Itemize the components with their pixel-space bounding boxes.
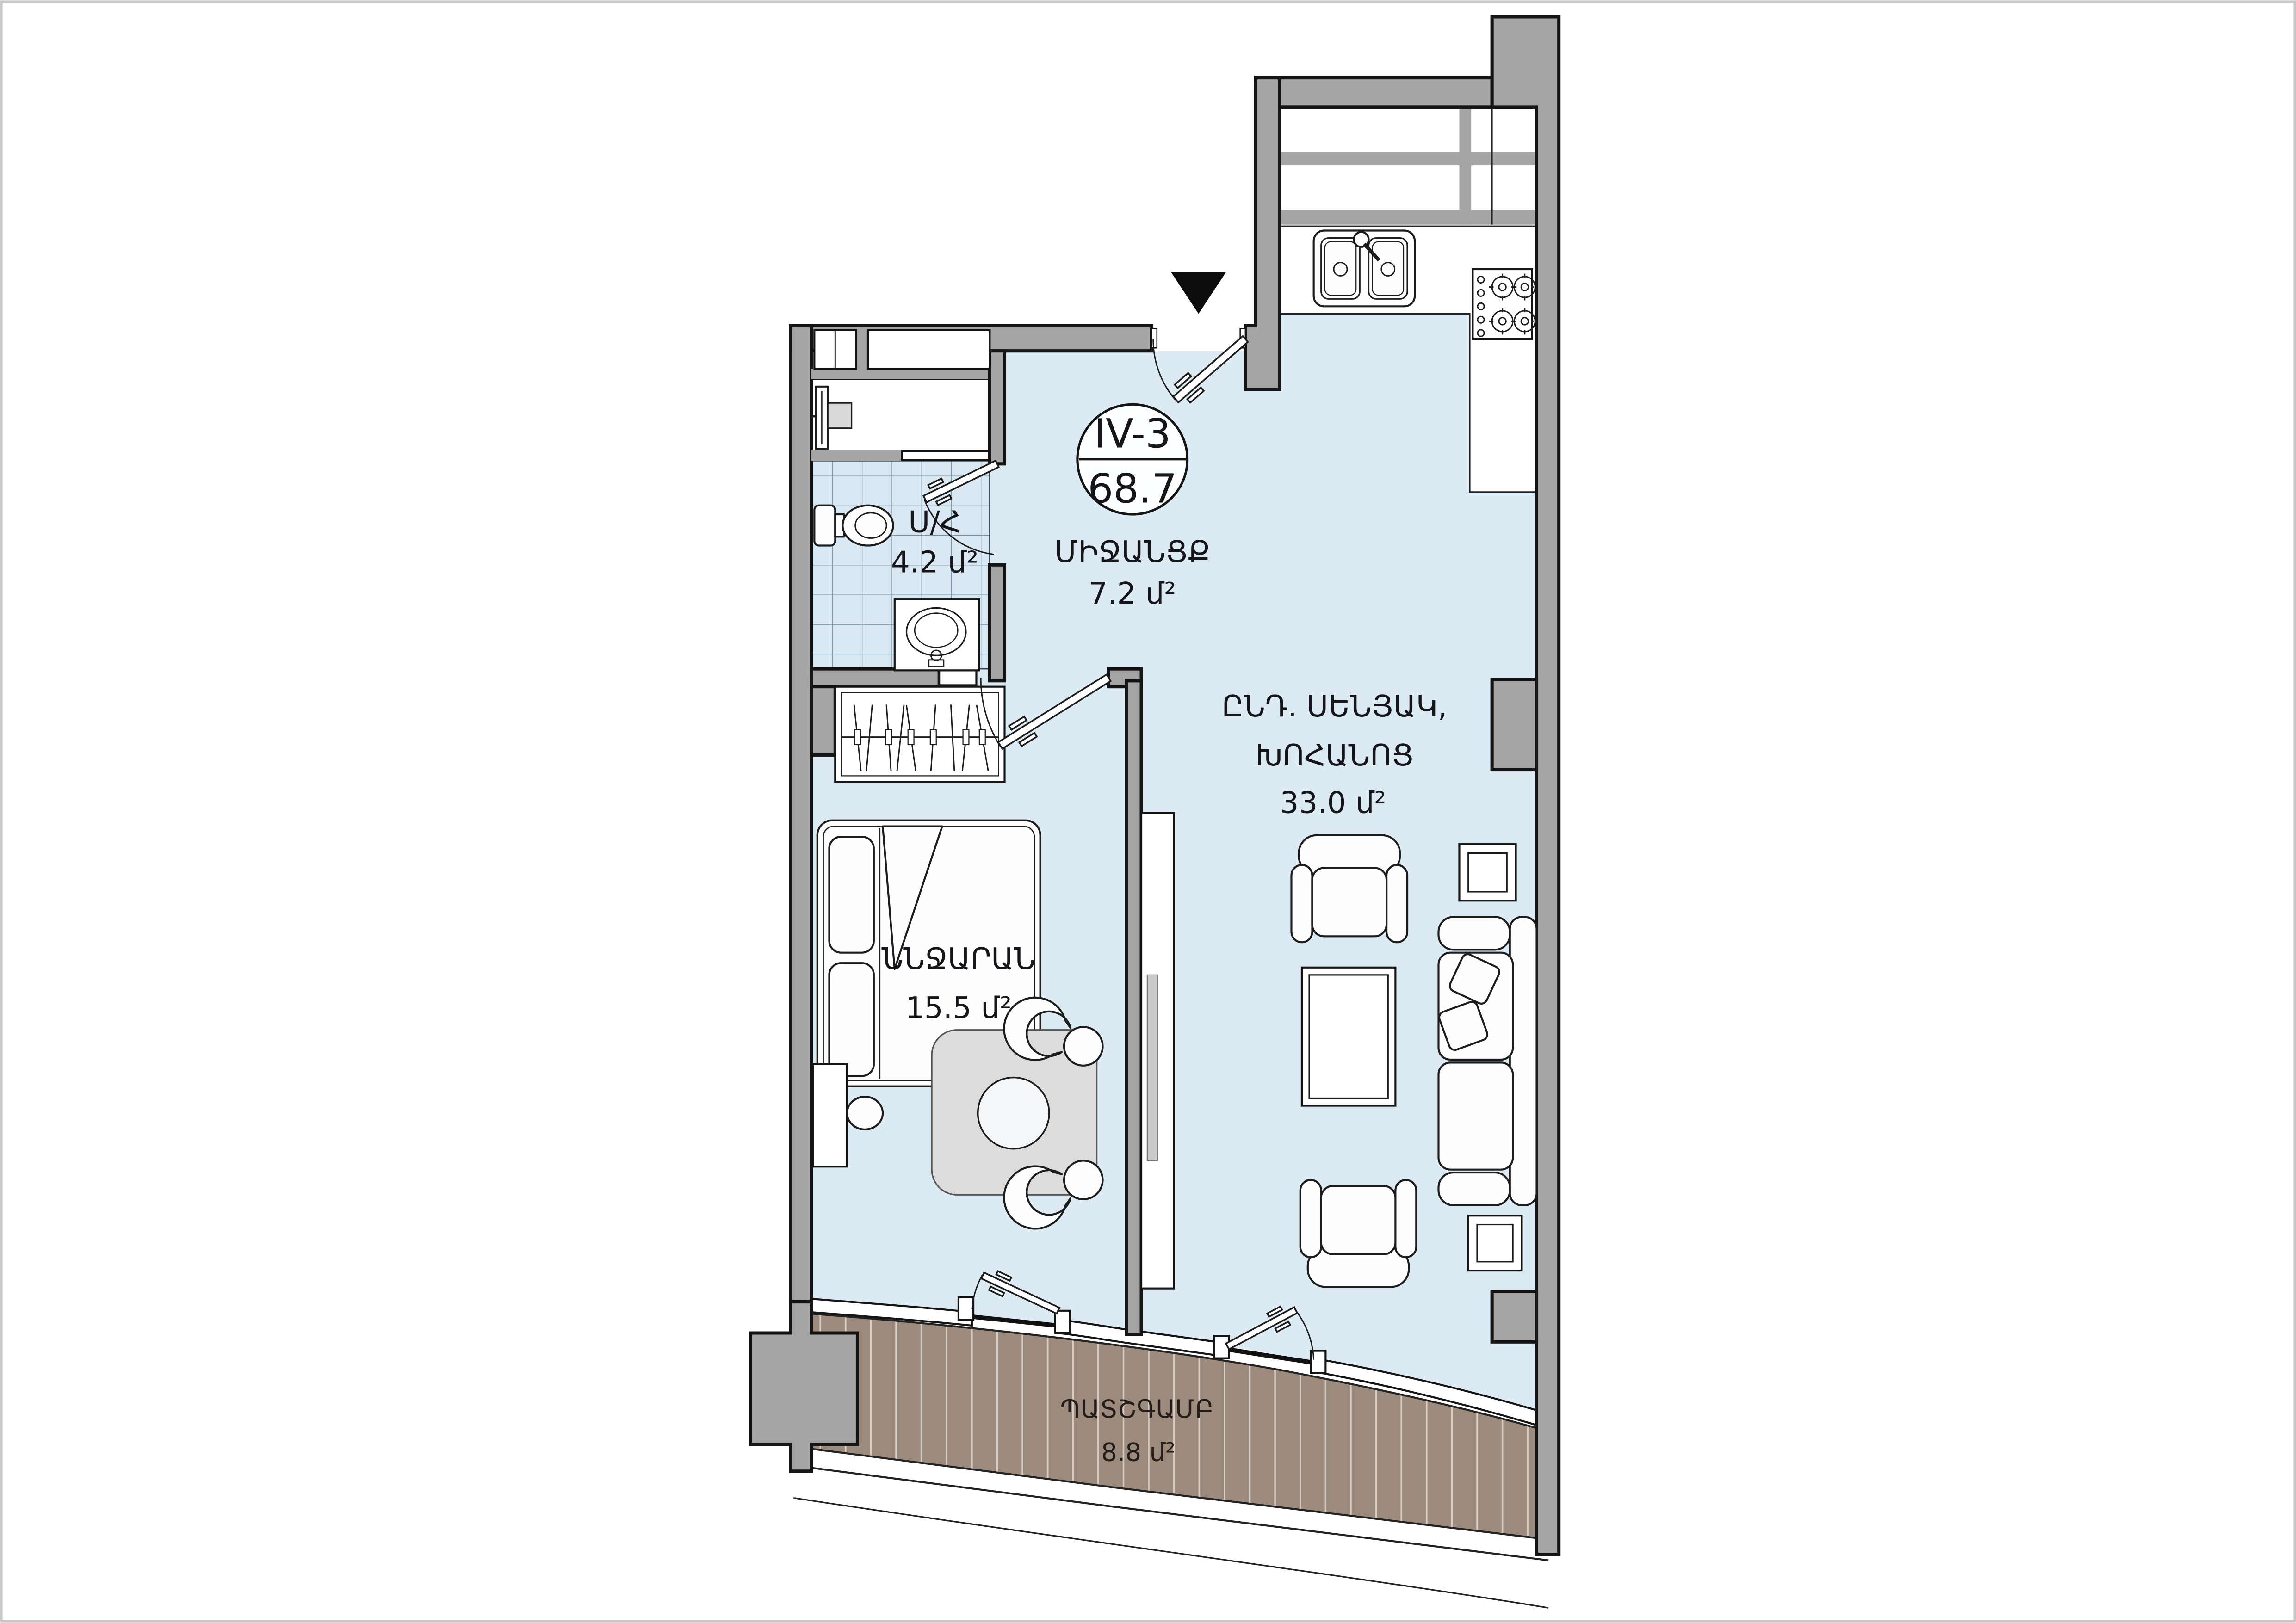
stove	[1473, 269, 1535, 339]
page: IV-3 68.7 Ս/Հ 4.2 մ² ՄԻՋԱՆՑՔ 7.2 մ² ԸՆԴ.…	[0, 0, 2296, 1623]
bathroom-right-wall	[990, 351, 1004, 464]
bathroom-area: 4.2 մ²	[891, 545, 978, 580]
living-kitchen-area: 33.0 մ²	[1280, 786, 1386, 821]
balcony-label: ՊԱՏՇԳԱՄԲ	[1060, 1394, 1213, 1424]
floor-plan: IV-3 68.7 Ս/Հ 4.2 մ² ՄԻՋԱՆՑՔ 7.2 մ² ԸՆԴ.…	[0, 0, 2296, 1623]
kitchen-window-bar	[1280, 152, 1537, 165]
side-table	[1468, 1216, 1522, 1271]
bedroom-label: ՆՆՋԱՐԱՆ	[882, 942, 1036, 976]
bathroom-right-wall	[990, 565, 1004, 681]
bedroom-area: 15.5 մ²	[905, 991, 1012, 1025]
right-wall-column	[1492, 679, 1536, 770]
toilet	[814, 506, 893, 546]
shaft-divider-wall	[856, 330, 868, 372]
left-wall-pier	[811, 679, 835, 755]
armchair	[1291, 835, 1407, 942]
utility-shafts	[814, 330, 990, 369]
bedroom-living-partition	[1126, 681, 1141, 1334]
coffee-table	[1302, 968, 1395, 1106]
side-table	[1459, 844, 1516, 901]
kitchen-sink	[1314, 230, 1415, 306]
armchair	[1300, 1180, 1417, 1287]
hallway-label: ՄԻՋԱՆՑՔ	[1054, 535, 1210, 569]
desk-chair	[847, 1097, 883, 1129]
unit-total-area: 68.7	[1088, 465, 1177, 512]
right-wall-column	[1492, 1291, 1536, 1342]
hallway-area: 7.2 մ²	[1089, 576, 1176, 611]
bathroom-sink	[895, 599, 979, 670]
kitchen-top-wall	[1280, 78, 1492, 107]
unit-badge: IV-3 68.7	[1077, 404, 1188, 514]
bathroom-label: Ս/Հ	[908, 505, 961, 540]
bathroom-divider-sill	[902, 451, 990, 460]
bathroom-divider-wall	[811, 450, 902, 461]
bedroom-top-wall	[811, 669, 939, 687]
living-kitchen-label-line2: ԽՈՀԱՆՈՑ	[1255, 738, 1414, 773]
kitchen-window-bar	[1280, 210, 1537, 225]
wardrobe-closet	[835, 687, 1004, 782]
balcony-area: 8.8 մ²	[1101, 1437, 1176, 1467]
left-wall	[791, 326, 811, 1333]
partition-panel	[1141, 813, 1174, 1289]
entrance-door-jamb	[1152, 329, 1157, 348]
pillow	[829, 837, 873, 953]
kitchen-window-pier	[1459, 107, 1471, 225]
unit-number: IV-3	[1094, 410, 1171, 457]
pillow	[829, 963, 873, 1076]
living-kitchen-label-line1: ԸՆԴ. ՍԵՆՅԱԿ,	[1222, 689, 1447, 724]
bathroom-inner-wall	[811, 369, 990, 379]
round-table	[978, 1078, 1049, 1149]
bedroom-door-sill	[939, 670, 976, 685]
